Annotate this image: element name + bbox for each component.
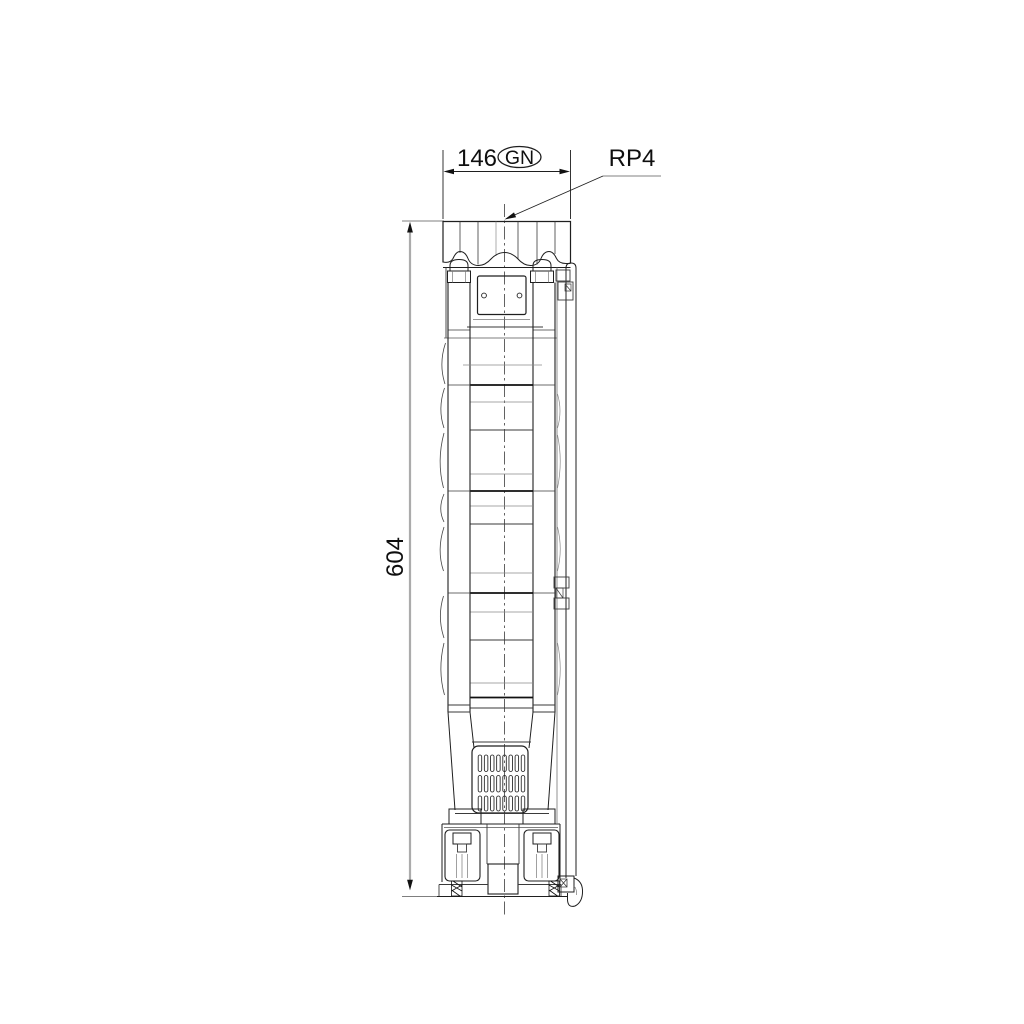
upper-chamber [444, 268, 557, 339]
cable-guard-strap-right [529, 283, 555, 811]
scalloped-edge [443, 252, 571, 266]
strainer-slots [478, 755, 525, 811]
cable-clamp-mid-a [554, 577, 569, 588]
discharge-chamber [443, 222, 571, 268]
motor-bolt-right [533, 833, 551, 844]
pump-stage-lines [448, 365, 555, 742]
dimension-arrow-left [444, 169, 455, 175]
suction-strainer [455, 746, 549, 814]
gn-badge-label: GN [505, 147, 534, 169]
dimension-arrow-right [560, 169, 571, 175]
connection-label: RP4 [609, 145, 656, 172]
height-dimension-value: 604 [382, 537, 409, 577]
motor-center-foot [488, 864, 518, 894]
nameplate [478, 276, 527, 315]
nameplate-screw-left [482, 293, 487, 298]
dimension-arrow-bottom [407, 880, 413, 891]
chamber-profile-right [558, 394, 561, 695]
nameplate-screw-right [517, 293, 522, 298]
drawing-page: 146 GN RP4 604 [0, 0, 1024, 1024]
motor-cable-box-right [524, 830, 559, 881]
cable-clamp-mid-b [554, 598, 569, 609]
cable-guard-top-right [531, 260, 554, 283]
leader-line [510, 176, 603, 217]
power-cable [554, 263, 583, 906]
base-bolt-left [452, 881, 463, 896]
cable-clamp-top-a [556, 270, 570, 281]
height-dimension: 604 [382, 221, 444, 897]
motor-bolt-left [453, 833, 471, 844]
pump-body [437, 222, 583, 907]
cable-guard-top-left [448, 260, 471, 283]
cable-guard-strap-left [448, 283, 474, 811]
width-dimension-value: 146 [457, 145, 497, 172]
motor-cable-box-left [445, 830, 480, 881]
guard-foot-left [449, 809, 481, 824]
leader-arrow [505, 212, 517, 219]
guard-foot-right [523, 809, 555, 824]
pump-technical-drawing: 146 GN RP4 604 [0, 0, 1024, 1024]
chamber-profile-left [440, 343, 445, 695]
motor-section [437, 824, 567, 897]
dimension-arrow-top [407, 222, 413, 233]
width-dimension: 146 GN [443, 145, 571, 219]
